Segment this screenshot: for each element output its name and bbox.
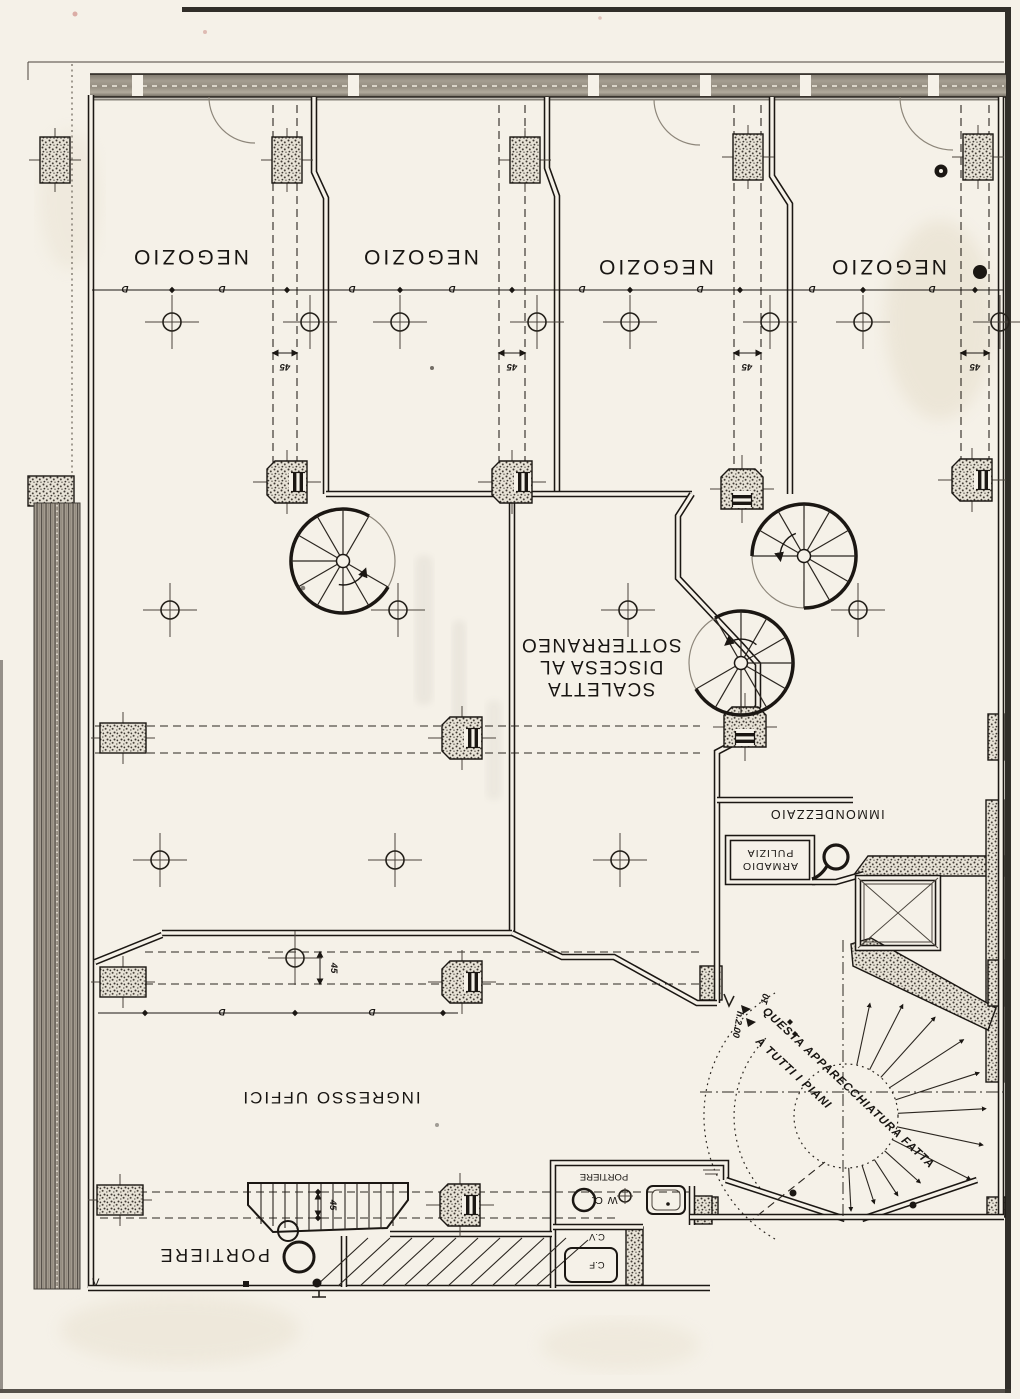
dim-d-6: D [696, 283, 703, 294]
photo-frame-top [182, 7, 1010, 12]
room-label-cf-cv: C.V C.F [588, 1231, 605, 1270]
dim-d-1: D [121, 283, 128, 294]
handwritten-note-line1: QUESTA APPARECCHIATURA FATTA [760, 1005, 936, 1171]
scaletta-line3: SOTTERRANEO [520, 634, 681, 655]
room-label-portiere: PORTIERE [158, 1245, 270, 1265]
dim-45-c: 45 [741, 361, 753, 372]
dim-d-8: D [928, 283, 935, 294]
height-note: h.2.00 [730, 1010, 746, 1039]
filled-column-dot [973, 265, 987, 279]
scaletta-line1: SCALETTA [547, 678, 656, 699]
armadio-line1: ARMADIO [742, 860, 798, 872]
entrance-stairs [243, 1183, 588, 1297]
dim-d-7: D [808, 283, 815, 294]
labels: NEGOZIO NEGOZIO NEGOZIO NEGOZIO SCALETTA… [92, 245, 981, 1289]
dim-45-marks [273, 353, 989, 1216]
photo-frame-left [0, 660, 3, 1393]
dim-10: 10 [759, 992, 773, 1006]
room-label-ingresso-uffici: INGRESSO UFFICI [241, 1088, 420, 1107]
spiral-stair-lower-right [670, 592, 812, 734]
floor-plan-drawing: NEGOZIO NEGOZIO NEGOZIO NEGOZIO SCALETTA… [0, 0, 1020, 1399]
dim-45-b: 45 [506, 361, 518, 372]
dim-45-f: 45 [327, 1199, 338, 1211]
photo-frame-right [1005, 7, 1011, 1393]
sidewalk-strip [28, 476, 80, 1289]
room-label-negozio-4: NEGOZIO [829, 255, 947, 278]
fan-stair-treads [316, 1238, 588, 1286]
dim-d-4: D [448, 283, 455, 294]
winder-stair [704, 993, 986, 1239]
garbage-chute [812, 845, 848, 879]
cf-text: C.F [589, 1259, 605, 1270]
door-swings [209, 97, 953, 150]
dim-45-a: 45 [279, 361, 291, 372]
armadio-line2: PULIZIA [747, 847, 794, 859]
room-label-negozio-3: NEGOZIO [596, 255, 714, 278]
dim-d-10: D [368, 1006, 375, 1017]
dim-d-5: D [578, 283, 585, 294]
photo-frame-bottom [0, 1389, 1011, 1393]
dimension-lines [92, 287, 1004, 1221]
dim-d-2: D [218, 283, 225, 294]
wc-text: W C. [590, 1194, 617, 1206]
wc-portiere-text: PORTIERE [580, 1171, 628, 1182]
cv-text: C.V [588, 1231, 605, 1242]
room-label-armadio-pulizia: ARMADIO PULIZIA [742, 847, 798, 872]
handwritten-note-line2: A TUTTI I PIANI [752, 1035, 833, 1112]
v-mark: V [92, 1277, 100, 1289]
facade-wall [90, 74, 1006, 100]
dim-45-e: 45 [328, 962, 339, 974]
room-label-negozio-1: NEGOZIO [131, 245, 249, 268]
scan-artifacts [0, 7, 1011, 1393]
cleaning-closet-room [728, 838, 812, 882]
scaletta-line2: DISCESA AL [539, 656, 664, 677]
room-label-negozio-2: NEGOZIO [361, 245, 479, 268]
room-label-immondezzaio: IMMONDEZZAIO [769, 807, 884, 821]
dim-45-d: 45 [969, 361, 981, 372]
elevator-shaft [858, 878, 938, 948]
dim-d-3: D [348, 283, 355, 294]
scanned-floor-plan-page: NEGOZIO NEGOZIO NEGOZIO NEGOZIO SCALETTA… [0, 0, 1020, 1399]
spiral-stair-left [291, 509, 395, 613]
dim-d-9: D [218, 1006, 225, 1017]
room-label-scaletta: SCALETTA DISCESA AL SOTTERRANEO [520, 634, 681, 699]
pink-speck [73, 12, 78, 17]
